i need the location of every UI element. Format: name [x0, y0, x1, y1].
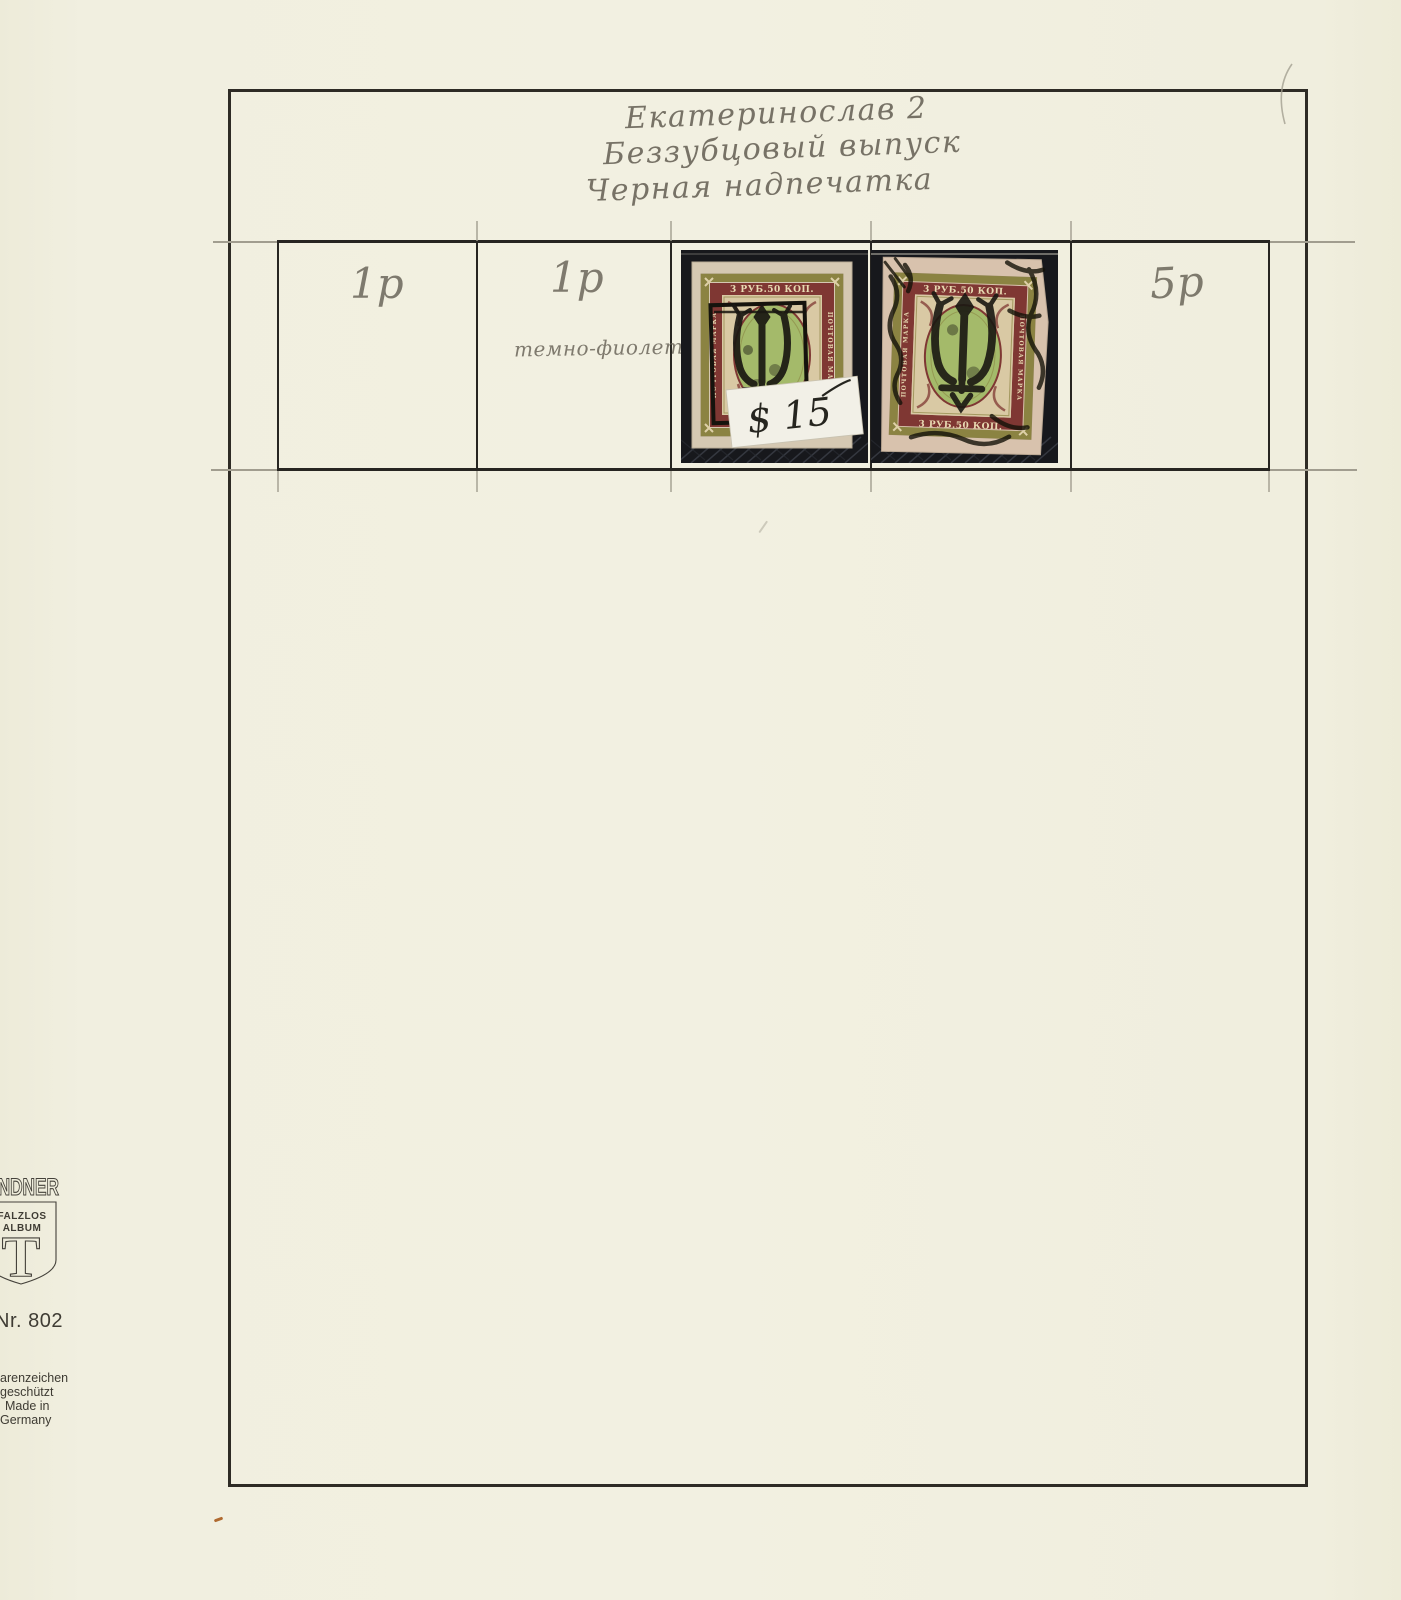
grid-bottom-line: [277, 468, 1270, 471]
pencil-stub: [476, 221, 478, 241]
pencil-stub: [476, 471, 478, 492]
footer-line-2: geschützt: [0, 1385, 54, 1399]
pencil-stub: [1070, 471, 1072, 492]
pencil-squiggle-mark: [1262, 58, 1316, 132]
pencil-stub: [1268, 471, 1270, 492]
album-page: Екатеринослав 2 Беззубцовый выпуск Черна…: [0, 0, 1401, 1600]
grid-vertical-5: [1070, 240, 1072, 471]
pencil-stub: [1070, 221, 1072, 241]
cell-5-value: 5р: [1149, 261, 1205, 306]
brand-name-text: INDNER: [0, 1174, 59, 1200]
cell-2-note: темно-фиолет: [514, 337, 684, 360]
pencil-stub: [870, 471, 872, 492]
lindner-logo: INDNER T FALZLOS ALBUM: [0, 1174, 64, 1288]
shield-line-2: ALBUM: [3, 1223, 42, 1234]
grid-vertical-6: [1268, 240, 1270, 471]
pencil-stub: [670, 471, 672, 492]
pencil-stub: [277, 471, 279, 492]
footer-line-4: Germany: [0, 1413, 51, 1427]
shield-line-1: FALZLOS: [0, 1211, 47, 1222]
cell-1-value: 1р: [350, 263, 404, 305]
footer-line-3: Made in: [5, 1399, 49, 1413]
paper-speck: [214, 1517, 223, 1523]
stamp-design: 3 РУБ.50 КОП. 3 РУБ.50 КОП. ПОЧТОВАЯ МАР…: [889, 273, 1037, 440]
footer-line-1: arenzeichen: [0, 1371, 68, 1385]
cell-2-value: 1р: [550, 257, 604, 299]
stamp-denomination-top: 3 РУБ.50 КОП.: [730, 285, 814, 295]
grid-vertical-2: [476, 240, 478, 471]
stamp-mount-1: 3 РУБ.50 КОП. 3 РУБ.50 КОП. ПОЧТОВАЯ МАР…: [681, 250, 868, 463]
pencil-stub: [870, 221, 872, 241]
stamp-mount-2: 3 РУБ.50 КОП. 3 РУБ.50 КОП. ПОЧТОВАЯ МАР…: [871, 250, 1058, 463]
stamp-2: 3 РУБ.50 КОП. 3 РУБ.50 КОП. ПОЧТОВАЯ МАР…: [877, 254, 1051, 457]
grid-top-line: [277, 240, 1270, 243]
catalog-number: Nr. 802: [0, 1310, 63, 1333]
grid-vertical-1: [277, 240, 279, 471]
pencil-stub: [670, 221, 672, 241]
price-label-text: $ 15: [745, 389, 834, 442]
